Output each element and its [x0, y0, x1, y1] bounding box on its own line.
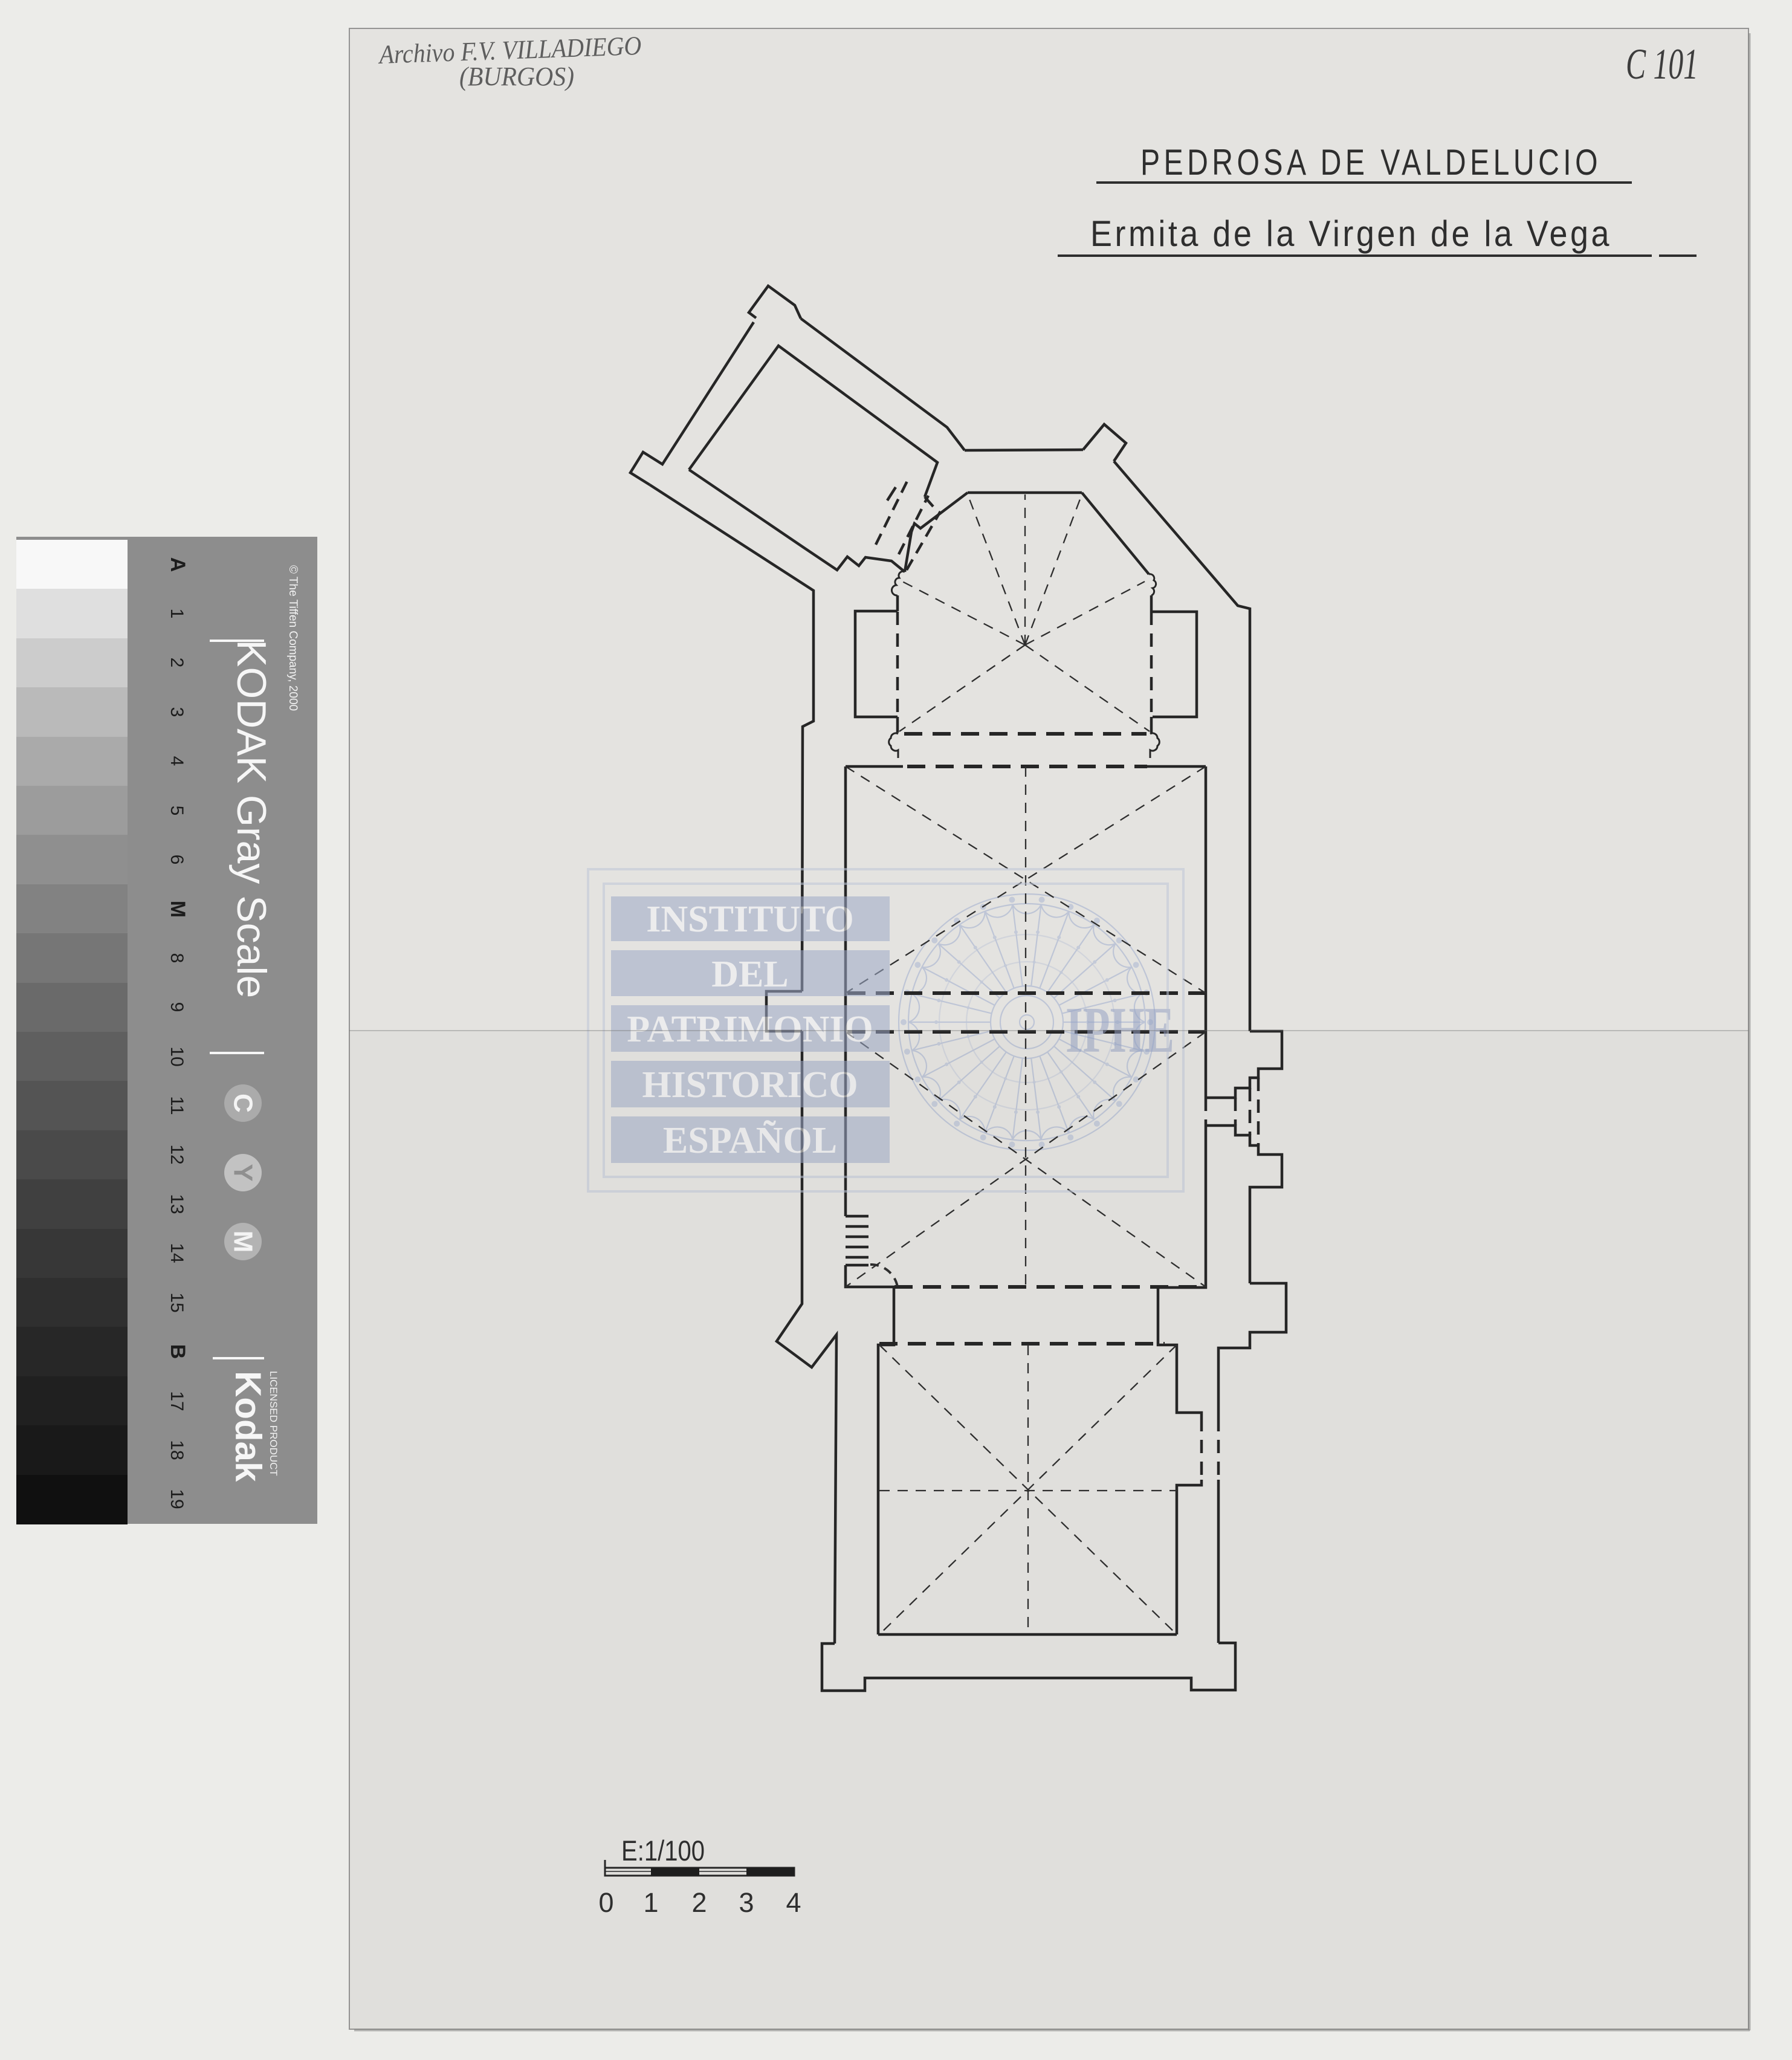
svg-text:2: 2 [167, 658, 187, 668]
svg-text:19: 19 [167, 1489, 187, 1509]
svg-text:(BURGOS): (BURGOS) [459, 62, 574, 91]
svg-text:KODAK Gray Scale: KODAK Gray Scale [228, 640, 274, 998]
svg-text:C: C [228, 1093, 258, 1113]
svg-text:18: 18 [167, 1440, 187, 1460]
svg-text:10: 10 [167, 1046, 187, 1066]
svg-text:5: 5 [167, 806, 187, 816]
svg-text:M: M [228, 1231, 258, 1253]
svg-text:1: 1 [167, 609, 187, 619]
svg-text:14: 14 [167, 1243, 187, 1263]
svg-text:Ermita de la Virgen de la: Ermita de la Virgen de la Vega [1090, 213, 1612, 254]
svg-text:© The Tiffen Company, 2000: © The Tiffen Company, 2000 [286, 565, 299, 711]
svg-text:8: 8 [167, 953, 187, 964]
svg-text:3: 3 [167, 707, 187, 717]
svg-text:Y: Y [228, 1164, 258, 1181]
svg-text:15: 15 [167, 1292, 187, 1312]
svg-text:13: 13 [167, 1194, 187, 1214]
svg-text:M: M [166, 901, 189, 918]
svg-text:PEDROSA DE VALDELUCIO: PEDROSA DE VALDELUCIO [1140, 142, 1602, 183]
svg-text:INSTITUTO: INSTITUTO [646, 899, 853, 940]
svg-text:LICENSED PRODUCT: LICENSED PRODUCT [268, 1371, 279, 1476]
svg-text:A: A [166, 557, 189, 572]
svg-text:12: 12 [167, 1144, 187, 1164]
svg-text:DEL: DEL [711, 954, 788, 995]
svg-text:9: 9 [167, 1002, 187, 1012]
svg-text:6: 6 [167, 855, 187, 865]
svg-text:17: 17 [167, 1391, 187, 1411]
svg-text:11: 11 [167, 1096, 187, 1115]
svg-text:Kodak: Kodak [228, 1371, 268, 1482]
svg-text:B: B [166, 1344, 189, 1359]
svg-text:4: 4 [167, 756, 187, 766]
svg-text:C 101: C 101 [1626, 40, 1698, 88]
